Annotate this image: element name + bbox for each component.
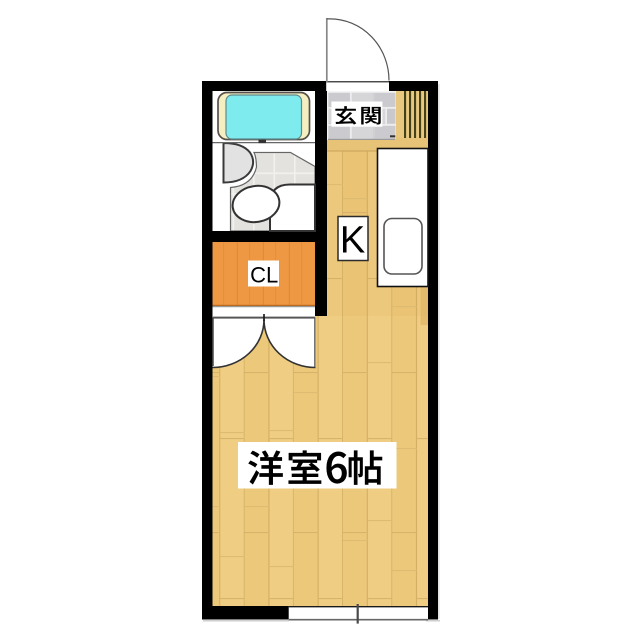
svg-text:K: K [340, 220, 365, 262]
svg-text:CL: CL [250, 263, 278, 288]
